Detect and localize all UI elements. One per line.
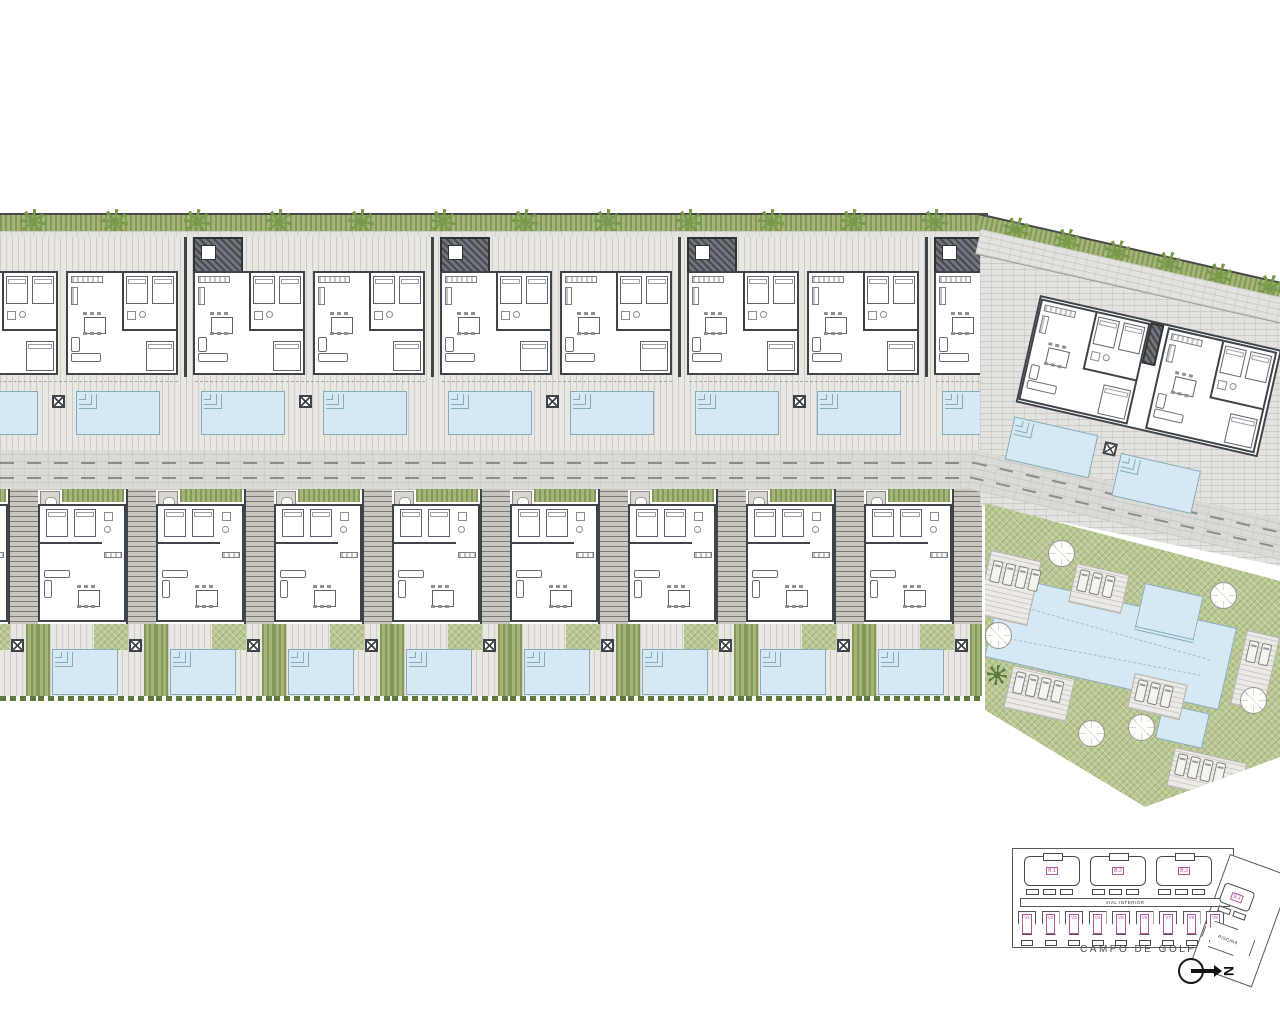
bed xyxy=(782,509,804,537)
keyplan-parking xyxy=(1026,889,1039,895)
boundary-hedge xyxy=(274,696,392,701)
bed xyxy=(900,509,922,537)
bed xyxy=(646,276,668,304)
parasol-icon xyxy=(1240,687,1267,714)
bath-fixture xyxy=(374,311,383,320)
pool-steps xyxy=(820,394,838,409)
villa-unit xyxy=(156,489,274,704)
sofa xyxy=(71,353,101,362)
kitchen-counter xyxy=(939,276,971,283)
interior-wall xyxy=(496,273,498,331)
bed xyxy=(310,509,332,537)
sofa xyxy=(939,353,969,362)
bed xyxy=(500,276,522,304)
chairs xyxy=(77,585,81,588)
garden-hedge xyxy=(392,624,404,696)
bed xyxy=(74,509,96,537)
apartment-block xyxy=(434,237,681,450)
bed xyxy=(767,341,795,371)
parasol-icon xyxy=(1210,582,1237,609)
kitchen-island xyxy=(318,287,325,305)
chairs xyxy=(195,585,199,588)
sofa xyxy=(752,580,760,598)
bed xyxy=(893,276,915,304)
garden-hedge xyxy=(38,624,50,696)
interior-wall xyxy=(1083,367,1136,381)
apartment-block xyxy=(187,237,434,450)
keyplan-parking xyxy=(1021,940,1033,946)
bed xyxy=(46,509,68,537)
villa-pool xyxy=(288,649,354,695)
planter-box xyxy=(483,639,496,652)
toilet xyxy=(633,311,640,318)
interior-wall xyxy=(158,542,220,544)
sofa xyxy=(516,570,542,578)
kitchen-counter xyxy=(930,552,948,558)
roof-planting xyxy=(888,489,950,502)
villa-pool xyxy=(760,649,826,695)
villa-unit xyxy=(38,489,156,704)
roof-planting xyxy=(416,489,478,502)
terrace-line xyxy=(195,381,425,382)
toilet xyxy=(576,526,583,533)
pool-steps xyxy=(291,652,309,667)
dining-table xyxy=(432,590,454,607)
pool-steps xyxy=(698,394,716,409)
chairs xyxy=(824,312,828,315)
keyplan-parking xyxy=(1126,889,1139,895)
planter-box xyxy=(129,639,142,652)
bed xyxy=(773,276,795,304)
interior-wall xyxy=(122,329,176,331)
north-arrow-bar-icon xyxy=(1191,969,1215,973)
garden-hedge xyxy=(380,624,392,696)
villa-floorplan xyxy=(156,504,244,622)
chairs xyxy=(577,312,581,315)
interior-wall xyxy=(616,273,618,331)
boundary-hedge xyxy=(38,696,156,701)
roof-planting xyxy=(298,489,360,502)
villa-unit xyxy=(0,489,38,704)
chairs xyxy=(951,312,955,315)
private-pool xyxy=(0,391,38,435)
bed xyxy=(26,341,54,371)
pool-steps xyxy=(409,652,427,667)
bath-fixture xyxy=(1217,380,1228,391)
apartment-unit xyxy=(313,271,425,375)
apartment-unit xyxy=(193,271,305,375)
sofa xyxy=(280,570,306,578)
bed xyxy=(636,509,658,537)
apartment-block xyxy=(928,237,988,450)
interior-wall xyxy=(2,329,56,331)
interior-wall xyxy=(276,542,338,544)
chairs xyxy=(903,585,907,588)
private-pool xyxy=(201,391,285,435)
dining-table xyxy=(904,590,926,607)
sofa xyxy=(692,337,701,352)
interior-wall xyxy=(743,329,797,331)
sofa xyxy=(198,353,228,362)
keyplan-road-label: VIAL INTERIOR xyxy=(1106,900,1145,905)
garden-hedge xyxy=(26,624,38,696)
pool-steps xyxy=(573,394,591,409)
kitchen-counter xyxy=(222,552,240,558)
bed xyxy=(520,341,548,371)
kitchen-island xyxy=(1039,315,1050,334)
pool-steps xyxy=(79,394,97,409)
dining-table xyxy=(84,317,106,334)
parasol-icon xyxy=(1078,720,1105,747)
bath-fixture xyxy=(501,311,510,320)
private-pool xyxy=(1005,416,1099,478)
villa-floorplan xyxy=(864,504,952,622)
bath-fixture xyxy=(694,512,703,521)
dining-table xyxy=(211,317,233,334)
garden-hedge xyxy=(510,624,522,696)
toilet xyxy=(694,526,701,533)
site-plan-canvas: B.1B.2B.3 VIAL INTERIOR V1V2V3V4V5V6V7V8… xyxy=(0,0,1280,1024)
chairs xyxy=(785,585,789,588)
chairs xyxy=(549,585,553,588)
bed xyxy=(282,509,304,537)
dining-table xyxy=(196,590,218,607)
keyplan-villa-label: V1 xyxy=(1022,914,1032,934)
bed xyxy=(620,276,642,304)
toilet xyxy=(386,311,393,318)
boundary-hedge xyxy=(156,696,274,701)
keyplan-parking xyxy=(1045,940,1057,946)
bath-fixture xyxy=(222,512,231,521)
pool-steps xyxy=(1013,420,1034,439)
bed xyxy=(1245,351,1273,383)
villa-unit xyxy=(864,489,982,704)
sofa xyxy=(44,580,52,598)
chairs xyxy=(83,312,87,315)
villa-unit xyxy=(392,489,510,704)
toilet xyxy=(1102,354,1110,362)
toilet xyxy=(930,526,937,533)
private-pool xyxy=(323,391,407,435)
keyplan-building: B.3 xyxy=(1156,856,1212,886)
keyplan-b4-label: B.4 xyxy=(1230,892,1244,903)
garden-hedge xyxy=(852,624,864,696)
villa-unit xyxy=(628,489,746,704)
keyplan-parking xyxy=(1158,889,1171,895)
garden-lawn xyxy=(802,624,836,650)
planter-box xyxy=(837,639,850,652)
sofa xyxy=(318,353,348,362)
sofa xyxy=(870,570,896,578)
chairs xyxy=(667,585,671,588)
dining-table xyxy=(331,317,353,334)
side-stairs xyxy=(362,489,392,637)
kitchen-counter xyxy=(694,552,712,558)
garden-lawn xyxy=(330,624,364,650)
sofa xyxy=(634,570,660,578)
villa-pool xyxy=(170,649,236,695)
chairs xyxy=(704,312,708,315)
sofa xyxy=(870,580,878,598)
pool-steps xyxy=(204,394,222,409)
keyplan-parking xyxy=(1217,905,1231,915)
sofa xyxy=(44,570,70,578)
apartment-block xyxy=(0,237,187,450)
villa-unit xyxy=(746,489,864,704)
side-stairs xyxy=(244,489,274,637)
pool-steps xyxy=(326,394,344,409)
keyplan-building-label: B.1 xyxy=(1046,867,1058,875)
pool-steps xyxy=(527,652,545,667)
chairs xyxy=(210,312,214,315)
bath-fixture xyxy=(930,512,939,521)
sofa xyxy=(71,337,80,352)
garden-hedge xyxy=(628,624,640,696)
sofa xyxy=(565,337,574,352)
boundary-hedge xyxy=(0,696,38,701)
sofa xyxy=(812,337,821,352)
sofa xyxy=(1155,393,1167,410)
toilet xyxy=(812,526,819,533)
bath-fixture xyxy=(812,512,821,521)
dining-table xyxy=(578,317,600,334)
private-pool xyxy=(570,391,654,435)
bed xyxy=(1092,317,1120,349)
garden-hedge xyxy=(864,624,876,696)
dining-table xyxy=(705,317,727,334)
interior-wall xyxy=(743,273,745,331)
roof-planting xyxy=(534,489,596,502)
kitchen-counter xyxy=(445,276,477,283)
keyplan-road: VIAL INTERIOR xyxy=(1020,898,1230,907)
kitchen-counter xyxy=(458,552,476,558)
villa-pool xyxy=(642,649,708,695)
bed xyxy=(126,276,148,304)
kitchen-island xyxy=(812,287,819,305)
bed xyxy=(1118,322,1146,354)
bath-fixture xyxy=(340,512,349,521)
keyplan-parking xyxy=(1092,889,1105,895)
garden-hedge xyxy=(970,624,982,696)
kitchen-island xyxy=(565,287,572,305)
apartment-unit xyxy=(560,271,672,375)
dining-table xyxy=(1172,376,1197,397)
apartment-unit xyxy=(687,271,799,375)
parasol-icon xyxy=(1128,714,1155,741)
planter-box xyxy=(247,639,260,652)
bath-fixture xyxy=(254,311,263,320)
toilet xyxy=(139,311,146,318)
bed xyxy=(872,509,894,537)
terrace-line xyxy=(442,381,672,382)
golf-course-label: CAMPO DE GOLF xyxy=(1058,944,1218,955)
kitchen-counter xyxy=(576,552,594,558)
interior-wall xyxy=(122,273,124,331)
internal-road xyxy=(0,450,988,490)
planter-box xyxy=(52,395,65,408)
bed xyxy=(192,509,214,537)
pool-steps xyxy=(55,652,73,667)
villa-floorplan xyxy=(0,504,8,622)
palm-icon xyxy=(987,665,1007,685)
dining-table xyxy=(952,317,974,334)
garden-lawn xyxy=(920,624,954,650)
keyplan-villa-label: V8 xyxy=(1187,914,1197,934)
keyplan-piscina-label: PISCINA xyxy=(1217,934,1238,946)
bath-fixture xyxy=(7,311,16,320)
terrace-line xyxy=(0,381,178,382)
road-marking xyxy=(0,477,988,479)
sofa xyxy=(162,580,170,598)
interior-wall xyxy=(863,329,917,331)
dining-table xyxy=(1045,347,1070,368)
toilet xyxy=(513,311,520,318)
kitchen-counter xyxy=(340,552,358,558)
pool-steps xyxy=(881,652,899,667)
apartment-unit xyxy=(66,271,178,375)
garden-hedge xyxy=(274,624,286,696)
planter-box xyxy=(546,395,559,408)
bed xyxy=(428,509,450,537)
bed xyxy=(152,276,174,304)
bath-fixture xyxy=(127,311,136,320)
toilet xyxy=(760,311,767,318)
sofa xyxy=(812,353,842,362)
bed xyxy=(279,276,301,304)
planter-box xyxy=(299,395,312,408)
sofa xyxy=(162,570,188,578)
apartment-unit xyxy=(934,271,988,375)
garden-hedge xyxy=(262,624,274,696)
keyplan-parking xyxy=(1175,889,1188,895)
private-pool xyxy=(695,391,779,435)
sofa xyxy=(445,353,475,362)
dining-table xyxy=(668,590,690,607)
bed xyxy=(1097,384,1131,419)
garden-hedge xyxy=(144,624,156,696)
side-stairs xyxy=(834,489,864,637)
interior-wall xyxy=(863,273,865,331)
keyplan-parking xyxy=(1060,889,1073,895)
bath-fixture xyxy=(868,311,877,320)
kitchen-island xyxy=(692,287,699,305)
garden-hedge xyxy=(156,624,168,696)
bath-fixture xyxy=(1090,351,1101,362)
keyplan-building-label: B.3 xyxy=(1178,867,1190,875)
villa-floorplan xyxy=(392,504,480,622)
interior-wall xyxy=(2,273,4,331)
boundary-hedge xyxy=(628,696,746,701)
side-stairs xyxy=(716,489,746,637)
sofa xyxy=(1153,408,1184,423)
villa-pool xyxy=(52,649,118,695)
sofa xyxy=(398,570,424,578)
villa-unit xyxy=(510,489,628,704)
interior-wall xyxy=(496,329,550,331)
garden-lawn xyxy=(566,624,600,650)
north-letter: N xyxy=(1221,966,1237,976)
sun-lounger xyxy=(1159,685,1174,709)
planter-box xyxy=(719,639,732,652)
villa-unit xyxy=(274,489,392,704)
dining-table xyxy=(825,317,847,334)
interior-wall xyxy=(40,542,102,544)
keyplan-building: B.1 xyxy=(1024,856,1080,886)
side-stairs xyxy=(480,489,510,637)
kitchen-counter xyxy=(71,276,103,283)
sofa xyxy=(565,353,595,362)
sofa xyxy=(445,337,454,352)
pool-steps xyxy=(945,394,963,409)
bed xyxy=(640,341,668,371)
bed xyxy=(887,341,915,371)
terrace-line xyxy=(689,381,919,382)
side-stairs xyxy=(126,489,156,637)
garden-hedge xyxy=(734,624,746,696)
bed xyxy=(32,276,54,304)
chairs xyxy=(457,312,461,315)
boundary-hedge xyxy=(864,696,982,701)
kitchen-counter xyxy=(0,552,4,558)
north-arrow: N xyxy=(1178,956,1248,990)
interior-wall xyxy=(249,329,303,331)
apartment-block xyxy=(681,237,928,450)
roof-planting xyxy=(652,489,714,502)
interior-wall xyxy=(394,542,456,544)
villa-row xyxy=(0,489,986,704)
bed xyxy=(6,276,28,304)
roof-planting xyxy=(62,489,124,502)
chairs xyxy=(330,312,334,315)
keyplan-villa-label: V7 xyxy=(1163,914,1173,934)
dining-table xyxy=(550,590,572,607)
sofa xyxy=(1026,379,1057,394)
planter-box xyxy=(365,639,378,652)
kitchen-counter xyxy=(318,276,350,283)
kitchen-counter xyxy=(812,552,830,558)
bed xyxy=(1219,345,1247,377)
interior-wall xyxy=(748,542,810,544)
kitchen-counter xyxy=(104,552,122,558)
villa-pool xyxy=(524,649,590,695)
toilet xyxy=(340,526,347,533)
bed xyxy=(146,341,174,371)
side-stairs xyxy=(598,489,628,637)
sofa xyxy=(398,580,406,598)
villa-floorplan xyxy=(38,504,126,622)
sofa xyxy=(280,580,288,598)
chairs xyxy=(313,585,317,588)
boundary-hedge xyxy=(510,696,628,701)
bed xyxy=(273,341,301,371)
dining-table xyxy=(786,590,808,607)
interior-wall xyxy=(369,273,371,331)
toilet xyxy=(1229,382,1237,390)
keyplan-parking xyxy=(1192,889,1205,895)
kitchen-counter xyxy=(692,276,724,283)
bath-fixture xyxy=(458,512,467,521)
private-pool xyxy=(76,391,160,435)
pool-steps xyxy=(645,652,663,667)
kitchen-counter xyxy=(812,276,844,283)
planter-box xyxy=(11,639,24,652)
road-marking xyxy=(0,462,988,464)
apartment-unit xyxy=(807,271,919,375)
bed xyxy=(664,509,686,537)
bed xyxy=(546,509,568,537)
planter-box xyxy=(601,639,614,652)
parasol-icon xyxy=(1048,540,1075,567)
